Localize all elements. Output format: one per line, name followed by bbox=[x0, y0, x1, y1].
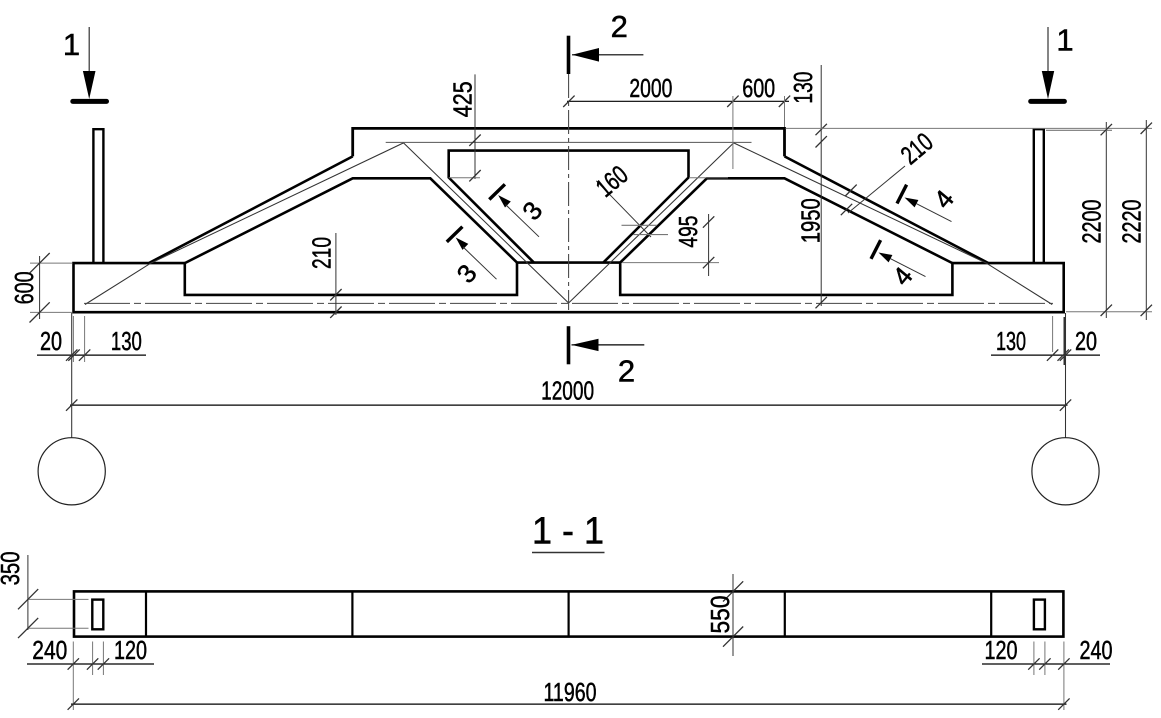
svg-text:1950: 1950 bbox=[796, 198, 826, 243]
svg-text:600: 600 bbox=[9, 271, 39, 304]
svg-text:12000: 12000 bbox=[541, 376, 594, 406]
svg-text:2200: 2200 bbox=[1077, 200, 1107, 244]
svg-text:2: 2 bbox=[611, 9, 628, 44]
svg-text:350: 350 bbox=[0, 551, 25, 585]
svg-text:130: 130 bbox=[111, 326, 142, 356]
svg-text:20: 20 bbox=[40, 326, 62, 356]
svg-text:425: 425 bbox=[448, 81, 478, 117]
svg-text:495: 495 bbox=[673, 216, 703, 248]
svg-text:2000: 2000 bbox=[629, 73, 672, 103]
svg-text:2: 2 bbox=[618, 354, 635, 389]
svg-text:550: 550 bbox=[705, 596, 735, 634]
svg-text:120: 120 bbox=[985, 635, 1018, 665]
svg-text:240: 240 bbox=[32, 635, 67, 665]
svg-text:1: 1 bbox=[1056, 23, 1073, 58]
svg-text:130: 130 bbox=[788, 72, 818, 104]
svg-text:1: 1 bbox=[63, 27, 80, 62]
svg-text:20: 20 bbox=[1075, 326, 1097, 356]
svg-text:240: 240 bbox=[1080, 635, 1113, 665]
svg-text:120: 120 bbox=[114, 635, 147, 665]
svg-text:2220: 2220 bbox=[1117, 200, 1147, 244]
svg-text:1 - 1: 1 - 1 bbox=[532, 511, 604, 553]
svg-text:600: 600 bbox=[742, 73, 775, 103]
svg-text:130: 130 bbox=[996, 326, 1026, 356]
svg-text:210: 210 bbox=[307, 237, 337, 269]
svg-text:11960: 11960 bbox=[544, 677, 597, 707]
